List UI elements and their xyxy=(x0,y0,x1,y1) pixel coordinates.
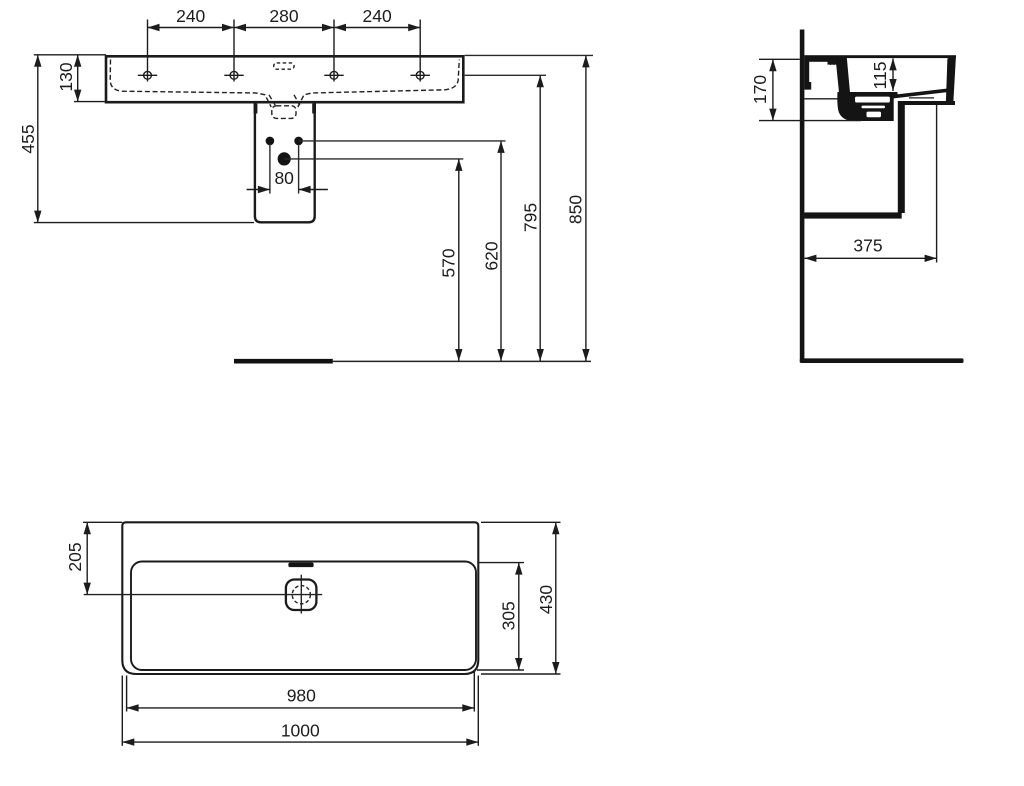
svg-text:1000: 1000 xyxy=(281,720,320,740)
svg-text:375: 375 xyxy=(853,236,882,256)
svg-text:305: 305 xyxy=(498,601,518,630)
svg-text:570: 570 xyxy=(439,248,459,277)
svg-text:620: 620 xyxy=(481,241,501,270)
svg-text:795: 795 xyxy=(520,203,540,232)
svg-text:115: 115 xyxy=(870,62,890,90)
svg-text:850: 850 xyxy=(566,195,586,224)
svg-text:455: 455 xyxy=(18,124,38,153)
svg-text:240: 240 xyxy=(362,6,391,26)
svg-text:240: 240 xyxy=(176,6,205,26)
svg-text:205: 205 xyxy=(65,542,85,571)
svg-text:80: 80 xyxy=(274,168,294,188)
svg-text:170: 170 xyxy=(750,75,770,104)
svg-text:280: 280 xyxy=(269,6,298,26)
svg-text:130: 130 xyxy=(56,62,76,91)
svg-text:980: 980 xyxy=(287,686,316,706)
svg-text:430: 430 xyxy=(536,585,556,614)
